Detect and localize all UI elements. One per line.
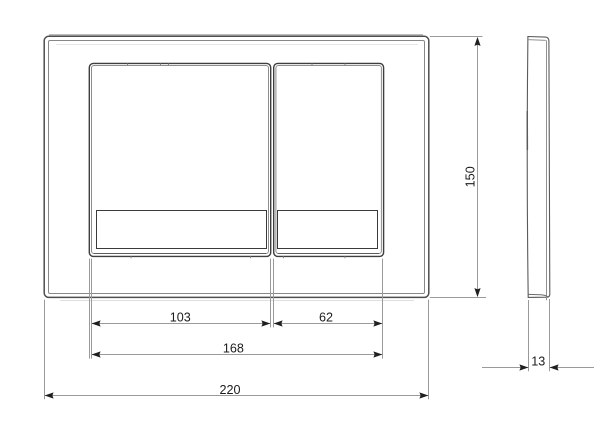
svg-text:150: 150 bbox=[464, 166, 478, 187]
svg-text:13: 13 bbox=[531, 355, 545, 369]
svg-text:62: 62 bbox=[319, 310, 333, 324]
svg-text:168: 168 bbox=[223, 342, 244, 356]
svg-text:220: 220 bbox=[219, 383, 240, 397]
svg-text:103: 103 bbox=[170, 310, 191, 324]
